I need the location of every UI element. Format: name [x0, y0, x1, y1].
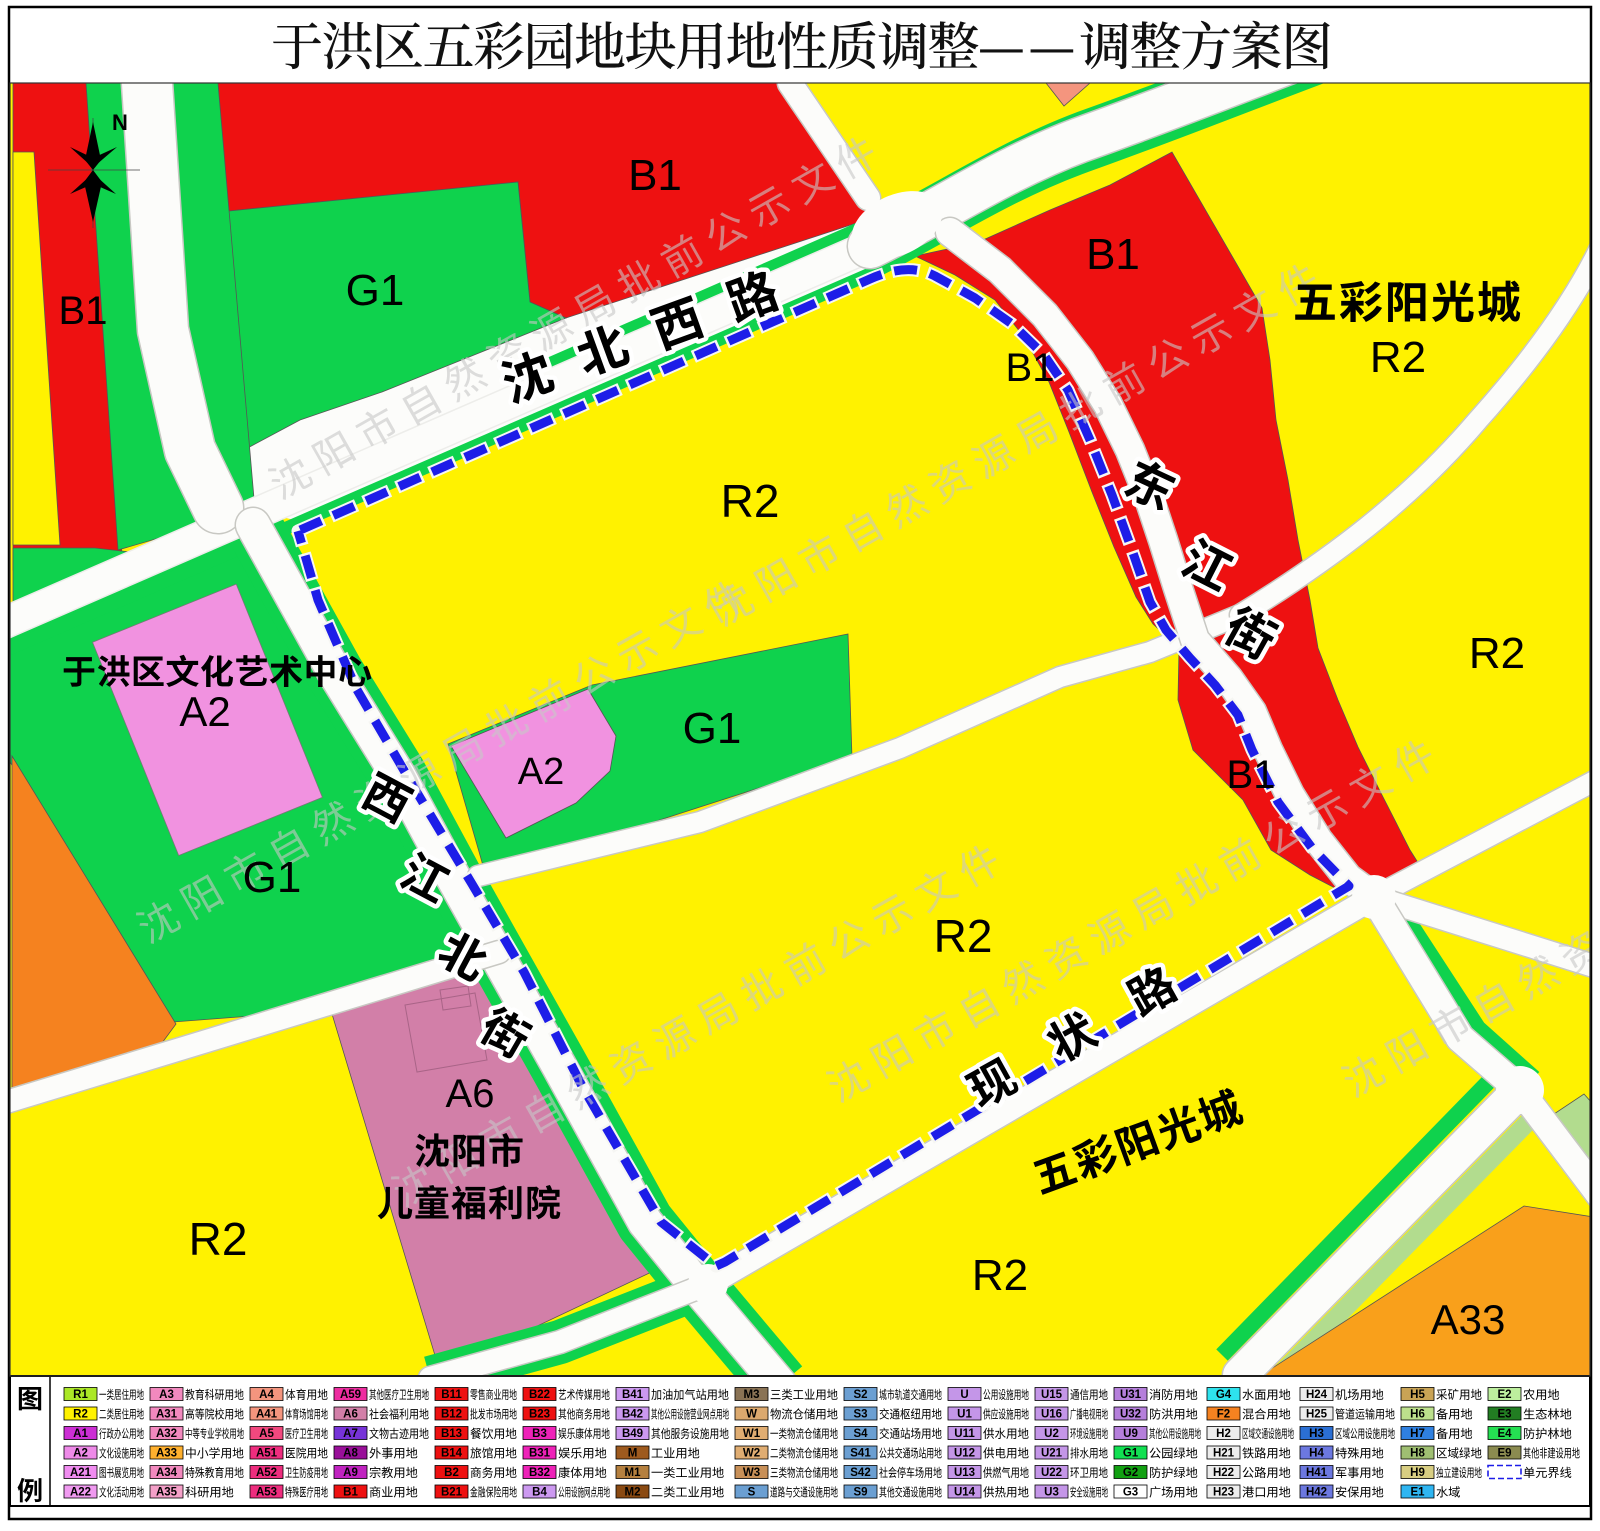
- svg-text:A33: A33: [1431, 1296, 1506, 1343]
- svg-text:A32: A32: [156, 1428, 177, 1440]
- svg-text:U1: U1: [957, 1409, 972, 1421]
- svg-text:U16: U16: [1041, 1409, 1062, 1421]
- svg-text:E1: E1: [1410, 1487, 1425, 1499]
- svg-text:H7: H7: [1410, 1428, 1425, 1440]
- svg-text:A5: A5: [259, 1428, 274, 1440]
- svg-text:E3: E3: [1497, 1409, 1511, 1421]
- svg-text:A6: A6: [343, 1409, 358, 1421]
- svg-text:B1: B1: [59, 289, 108, 333]
- svg-text:S4: S4: [853, 1428, 868, 1440]
- svg-text:N: N: [112, 110, 128, 135]
- svg-text:B13: B13: [441, 1428, 462, 1440]
- svg-text:B14: B14: [441, 1448, 463, 1460]
- svg-text:B4: B4: [532, 1487, 547, 1499]
- svg-text:U14: U14: [954, 1487, 976, 1499]
- svg-text:H42: H42: [1306, 1487, 1327, 1499]
- svg-text:A22: A22: [70, 1487, 91, 1499]
- svg-text:U31: U31: [1120, 1389, 1142, 1401]
- svg-text:A35: A35: [156, 1487, 178, 1499]
- svg-text:A9: A9: [343, 1467, 358, 1479]
- svg-text:H21: H21: [1213, 1448, 1235, 1460]
- svg-text:U11: U11: [954, 1428, 975, 1440]
- svg-text:A8: A8: [343, 1448, 358, 1460]
- svg-text:M1: M1: [625, 1467, 642, 1479]
- svg-text:E4: E4: [1497, 1428, 1512, 1440]
- svg-text:W2: W2: [743, 1448, 760, 1460]
- svg-text:H2: H2: [1216, 1428, 1231, 1440]
- svg-text:H22: H22: [1213, 1467, 1234, 1479]
- svg-text:W1: W1: [743, 1428, 761, 1440]
- svg-text:R2: R2: [1370, 333, 1426, 382]
- svg-text:B41: B41: [622, 1389, 644, 1401]
- svg-text:A52: A52: [256, 1467, 277, 1479]
- svg-text:S: S: [748, 1487, 756, 1499]
- svg-text:H6: H6: [1410, 1409, 1425, 1421]
- svg-text:U2: U2: [1044, 1428, 1059, 1440]
- svg-text:B12: B12: [441, 1409, 462, 1421]
- svg-text:G1: G1: [346, 266, 405, 315]
- svg-text:A31: A31: [156, 1409, 178, 1421]
- svg-text:A6: A6: [446, 1072, 495, 1116]
- svg-text:H8: H8: [1410, 1448, 1425, 1460]
- svg-text:B1: B1: [1086, 230, 1140, 279]
- svg-text:R2: R2: [934, 910, 993, 962]
- svg-text:S3: S3: [853, 1409, 867, 1421]
- svg-text:M2: M2: [625, 1487, 641, 1499]
- svg-text:G1: G1: [1123, 1448, 1139, 1460]
- svg-text:H4: H4: [1309, 1448, 1324, 1460]
- svg-text:S42: S42: [850, 1467, 870, 1479]
- svg-text:B31: B31: [529, 1448, 551, 1460]
- svg-text:R2: R2: [972, 1251, 1028, 1300]
- svg-text:E9: E9: [1497, 1448, 1511, 1460]
- svg-text:A53: A53: [256, 1487, 277, 1499]
- svg-text:A7: A7: [343, 1428, 358, 1440]
- svg-text:A41: A41: [256, 1409, 278, 1421]
- svg-text:A1: A1: [73, 1428, 88, 1440]
- svg-text:A51: A51: [256, 1448, 278, 1460]
- svg-text:H41: H41: [1306, 1467, 1328, 1479]
- svg-text:B22: B22: [529, 1389, 550, 1401]
- svg-text:R2: R2: [73, 1409, 88, 1421]
- svg-text:R2: R2: [1469, 629, 1525, 678]
- svg-text:H23: H23: [1213, 1487, 1234, 1499]
- svg-text:B11: B11: [441, 1389, 462, 1401]
- svg-text:R1: R1: [73, 1389, 88, 1401]
- svg-text:B1: B1: [628, 151, 682, 200]
- svg-text:A2: A2: [518, 751, 564, 793]
- svg-text:M3: M3: [744, 1389, 760, 1401]
- svg-text:M: M: [628, 1448, 638, 1460]
- svg-text:W3: W3: [743, 1467, 760, 1479]
- svg-text:A21: A21: [70, 1467, 92, 1479]
- svg-text:U12: U12: [954, 1448, 975, 1460]
- svg-text:H3: H3: [1309, 1428, 1324, 1440]
- svg-text:U15: U15: [1041, 1389, 1063, 1401]
- svg-text:U32: U32: [1120, 1409, 1141, 1421]
- svg-text:S41: S41: [850, 1448, 871, 1460]
- svg-text:B3: B3: [532, 1428, 547, 1440]
- svg-text:H25: H25: [1306, 1409, 1328, 1421]
- svg-text:A59: A59: [340, 1389, 361, 1401]
- svg-text:H9: H9: [1410, 1467, 1425, 1479]
- svg-text:U3: U3: [1044, 1487, 1059, 1499]
- svg-text:B1: B1: [1227, 753, 1276, 797]
- svg-text:B23: B23: [529, 1409, 550, 1421]
- svg-text:A3: A3: [159, 1389, 174, 1401]
- svg-text:E2: E2: [1497, 1389, 1511, 1401]
- svg-text:U21: U21: [1041, 1448, 1063, 1460]
- svg-text:B2: B2: [444, 1467, 459, 1479]
- svg-text:B1: B1: [1006, 346, 1055, 390]
- svg-text:B42: B42: [622, 1409, 643, 1421]
- svg-text:G4: G4: [1216, 1389, 1232, 1401]
- svg-text:G3: G3: [1123, 1487, 1138, 1499]
- svg-text:B49: B49: [622, 1428, 643, 1440]
- svg-text:A2: A2: [179, 688, 230, 735]
- svg-text:U22: U22: [1041, 1467, 1062, 1479]
- svg-text:F2: F2: [1217, 1409, 1230, 1421]
- svg-text:U: U: [960, 1389, 968, 1401]
- svg-text:H24: H24: [1306, 1389, 1328, 1401]
- svg-text:B32: B32: [529, 1467, 550, 1479]
- svg-text:A2: A2: [73, 1448, 88, 1460]
- svg-text:R2: R2: [721, 475, 780, 527]
- svg-text:A4: A4: [259, 1389, 274, 1401]
- svg-text:G1: G1: [683, 704, 742, 753]
- svg-text:R2: R2: [189, 1213, 248, 1265]
- svg-text:H5: H5: [1410, 1389, 1425, 1401]
- svg-text:B1: B1: [343, 1487, 358, 1499]
- svg-text:A34: A34: [156, 1467, 178, 1479]
- svg-text:B21: B21: [441, 1487, 463, 1499]
- svg-text:S9: S9: [853, 1487, 867, 1499]
- svg-text:U13: U13: [954, 1467, 975, 1479]
- svg-text:S2: S2: [853, 1389, 867, 1401]
- svg-text:U9: U9: [1123, 1428, 1138, 1440]
- svg-text:W: W: [746, 1409, 757, 1421]
- svg-text:G2: G2: [1123, 1467, 1138, 1479]
- svg-text:A33: A33: [156, 1448, 177, 1460]
- svg-text:G1: G1: [243, 853, 302, 902]
